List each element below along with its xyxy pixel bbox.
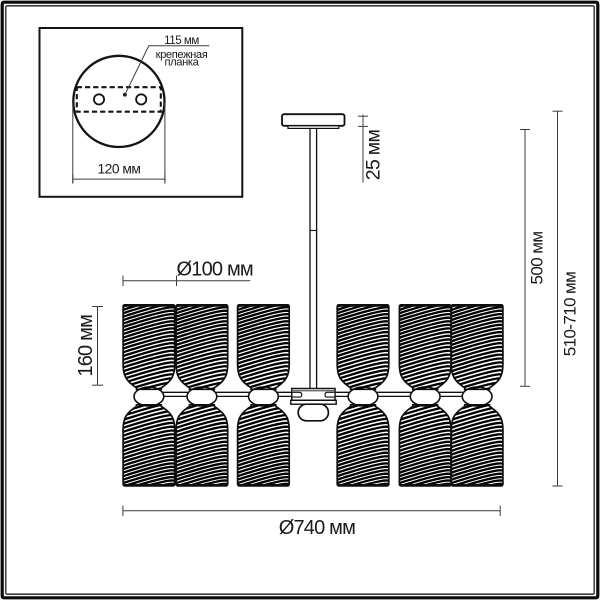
svg-text:25 мм: 25 мм — [362, 129, 384, 180]
svg-text:500 мм: 500 мм — [527, 232, 546, 285]
svg-text:120 мм: 120 мм — [97, 162, 140, 177]
svg-text:Ø740 мм: Ø740 мм — [279, 517, 355, 539]
svg-text:Ø100 мм: Ø100 мм — [177, 259, 253, 281]
svg-text:160 мм: 160 мм — [75, 315, 97, 377]
svg-text:510-710 мм: 510-710 мм — [560, 272, 579, 357]
svg-text:планка: планка — [165, 57, 200, 69]
svg-text:115 мм: 115 мм — [164, 34, 199, 47]
